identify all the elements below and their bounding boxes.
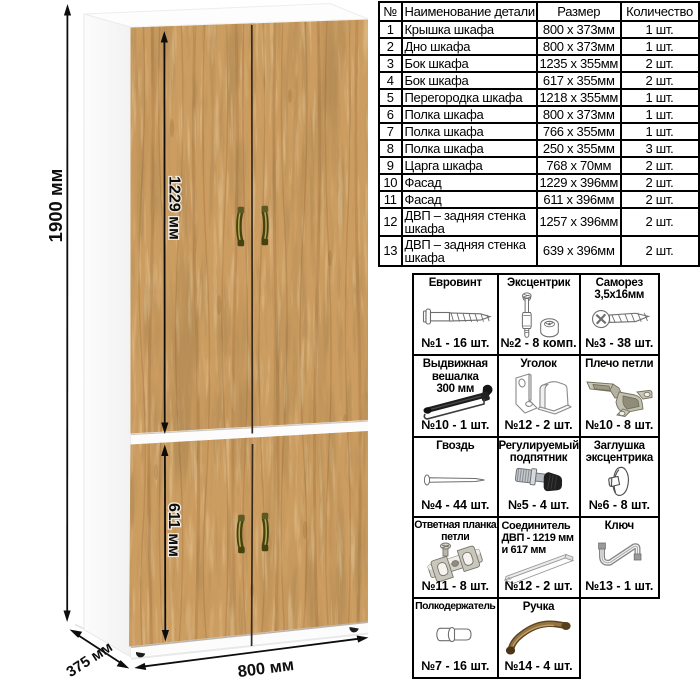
svg-text:1900 мм: 1900 мм bbox=[45, 169, 66, 243]
svg-text:375 мм: 375 мм bbox=[63, 639, 115, 681]
svg-text:1229 мм: 1229 мм bbox=[166, 176, 183, 240]
svg-text:611 мм: 611 мм bbox=[165, 503, 182, 557]
svg-text:800 мм: 800 мм bbox=[237, 656, 295, 681]
